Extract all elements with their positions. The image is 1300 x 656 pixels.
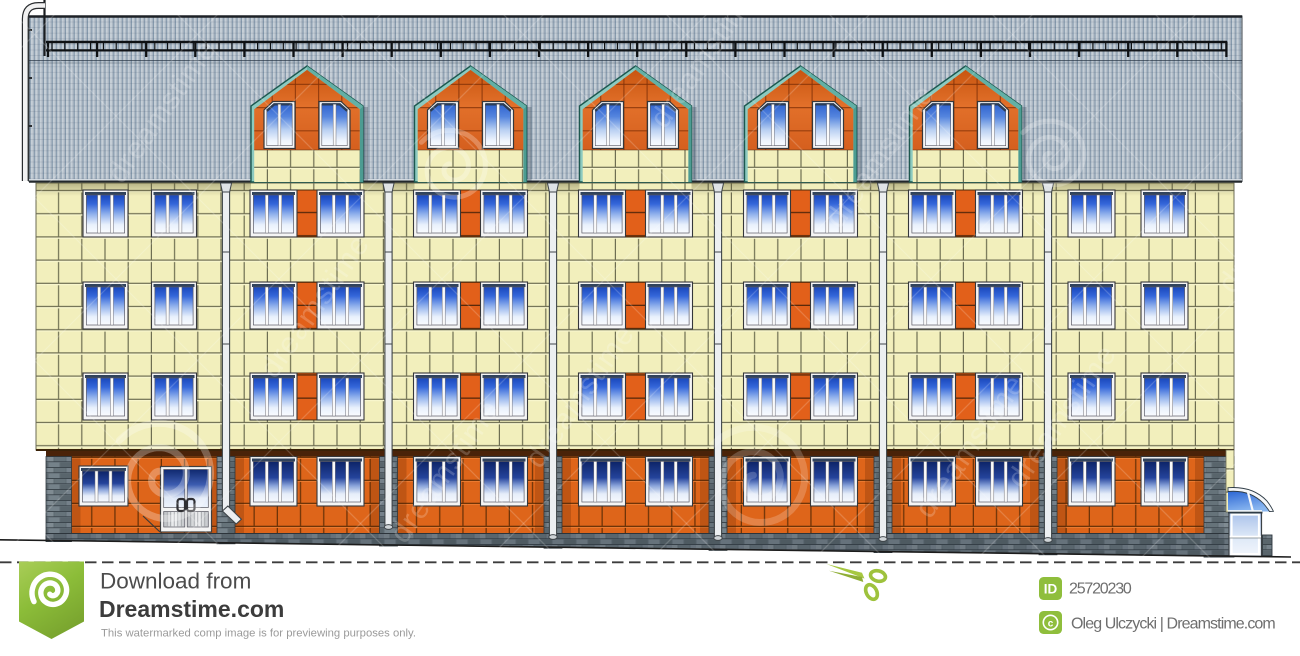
svg-text:ID: ID [1044, 582, 1058, 597]
svg-text:25720230: 25720230 [1069, 581, 1132, 598]
svg-text:This watermarked comp image is: This watermarked comp image is for previ… [101, 628, 416, 640]
svg-text:c: c [1048, 619, 1054, 630]
svg-text:Oleg Ulczycki | Dreamstime.com: Oleg Ulczycki | Dreamstime.com [1071, 616, 1275, 633]
svg-text:Download from: Download from [100, 569, 251, 594]
svg-text:Dreamstime.com: Dreamstime.com [99, 596, 284, 622]
